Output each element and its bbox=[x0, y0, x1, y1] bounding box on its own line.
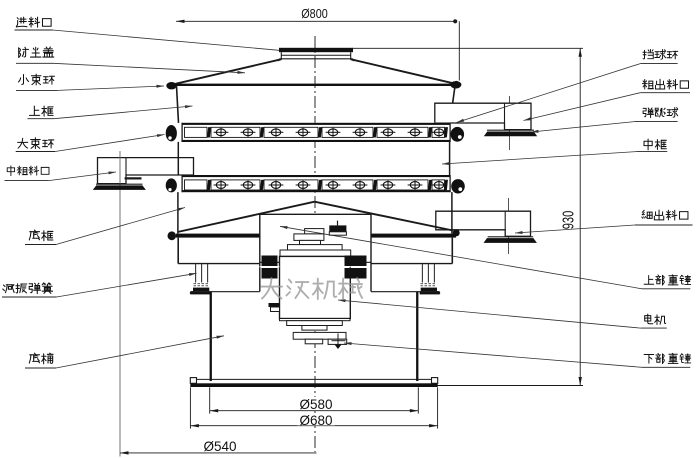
svg-text:Ø680: Ø680 bbox=[300, 412, 333, 428]
svg-text:Ø800: Ø800 bbox=[301, 6, 328, 21]
svg-text:Ø540: Ø540 bbox=[204, 438, 237, 454]
svg-text:Ø580: Ø580 bbox=[300, 396, 333, 412]
svg-text:930: 930 bbox=[561, 210, 578, 229]
